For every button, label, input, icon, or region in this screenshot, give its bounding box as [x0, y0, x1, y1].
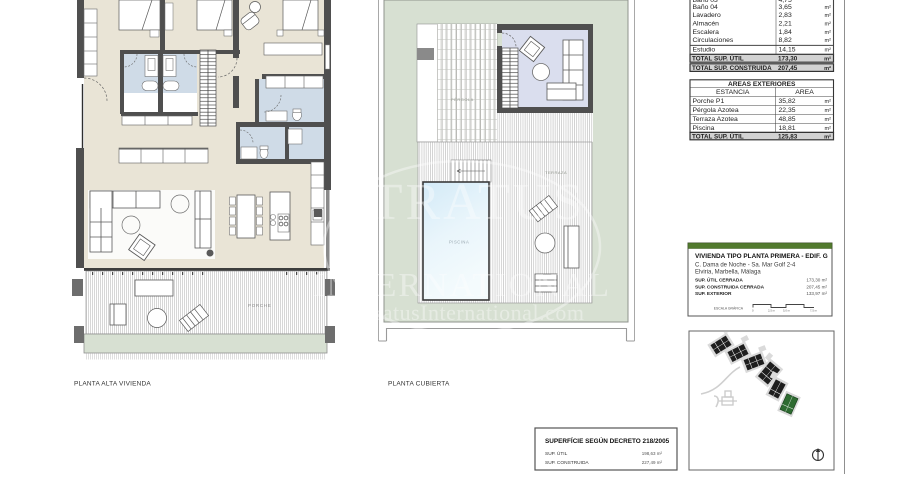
- svg-text:SUP. ÚTIL: SUP. ÚTIL: [545, 450, 568, 457]
- svg-text:227,49 m²: 227,49 m²: [642, 460, 663, 465]
- svg-text:m²: m²: [824, 108, 831, 114]
- svg-text:198,63 m²: 198,63 m²: [642, 451, 663, 456]
- svg-text:TOTAL SUP. CONSTRUIDA: TOTAL SUP. CONSTRUIDA: [692, 65, 772, 72]
- svg-text:SUP. CONSTRUIDA: SUP. CONSTRUIDA: [545, 460, 589, 466]
- svg-text:AREAS EXTERIORES: AREAS EXTERIORES: [728, 81, 796, 88]
- svg-text:m²: m²: [824, 117, 831, 123]
- svg-text:m²: m²: [824, 133, 831, 140]
- svg-text:PISCINA: PISCINA: [449, 240, 469, 245]
- svg-text:Terraza Azotea: Terraza Azotea: [693, 116, 739, 123]
- svg-text:SUPERFÍCIE SEGÚN DECRETO 218/2: SUPERFÍCIE SEGÚN DECRETO 218/2005: [545, 436, 670, 445]
- svg-text:STRATUS: STRATUS: [339, 174, 585, 231]
- svg-text:133,97 m²: 133,97 m²: [806, 291, 827, 296]
- svg-text:TOTAL SUP. ÚTIL: TOTAL SUP. ÚTIL: [692, 131, 744, 140]
- svg-text:Lavadero: Lavadero: [693, 12, 722, 19]
- svg-text:m²: m²: [824, 5, 831, 11]
- svg-text:18,81: 18,81: [779, 125, 796, 132]
- svg-text:VIVIENDA TIPO PLANTA PRIMERA -: VIVIENDA TIPO PLANTA PRIMERA - EDIF. G: [695, 253, 828, 260]
- svg-text:ESCALA GRÁFICA: ESCALA GRÁFICA: [714, 307, 744, 311]
- svg-text:INTERNATIONAL: INTERNATIONAL: [313, 267, 611, 304]
- svg-text:Baño 04: Baño 04: [693, 4, 719, 11]
- svg-text:PORCHE: PORCHE: [248, 303, 271, 308]
- svg-text:Piscina: Piscina: [693, 125, 715, 132]
- svg-text:Circulaciones: Circulaciones: [693, 37, 734, 44]
- svg-text:m²: m²: [824, 99, 831, 105]
- svg-text:125,83: 125,83: [778, 133, 798, 140]
- svg-text:173,30 m²: 173,30 m²: [806, 278, 827, 283]
- svg-text:2,5 m: 2,5 m: [768, 309, 776, 313]
- svg-text:m²: m²: [824, 47, 831, 53]
- svg-text:8,82: 8,82: [779, 37, 792, 44]
- svg-text:SUP. CONSTRUIDA CERRADA: SUP. CONSTRUIDA CERRADA: [695, 284, 765, 290]
- svg-text:PLANTA CUBIERTA: PLANTA CUBIERTA: [388, 381, 450, 388]
- svg-text:m²: m²: [824, 56, 831, 63]
- svg-text:3,65: 3,65: [779, 4, 792, 11]
- svg-text:C. Dama de Noche - Sa. Mar Gol: C. Dama de Noche - Sa. Mar Golf 2-4: [695, 263, 796, 269]
- svg-text:ESTANCIA: ESTANCIA: [716, 89, 750, 96]
- svg-text:207,45 m²: 207,45 m²: [806, 284, 827, 289]
- svg-text:Porche P1: Porche P1: [693, 98, 725, 105]
- svg-text:7,5 m: 7,5 m: [810, 309, 818, 313]
- svg-text:Almacén: Almacén: [693, 21, 720, 28]
- svg-text:48,85: 48,85: [779, 116, 796, 123]
- svg-text:5,0 m: 5,0 m: [783, 309, 791, 313]
- svg-text:2,21: 2,21: [779, 21, 792, 28]
- svg-text:StratusInternational.com: StratusInternational.com: [356, 300, 585, 325]
- svg-text:TOTAL SUP. ÚTIL: TOTAL SUP. ÚTIL: [692, 54, 744, 63]
- svg-text:2,83: 2,83: [779, 12, 792, 19]
- svg-text:SUP. EXTERIOR: SUP. EXTERIOR: [695, 291, 732, 297]
- svg-text:14,15: 14,15: [779, 46, 796, 53]
- svg-text:173,30: 173,30: [778, 56, 798, 63]
- svg-text:PÉRGOLA: PÉRGOLA: [451, 97, 474, 102]
- svg-text:PLANTA ALTA VIVIENDA: PLANTA ALTA VIVIENDA: [74, 381, 151, 388]
- svg-text:m²: m²: [824, 38, 831, 44]
- svg-text:m²: m²: [824, 126, 831, 132]
- svg-text:SUP. ÚTIL CERRADA: SUP. ÚTIL CERRADA: [695, 277, 743, 284]
- svg-text:35,82: 35,82: [779, 98, 796, 105]
- svg-text:Estudio: Estudio: [693, 46, 716, 53]
- svg-text:m²: m²: [824, 22, 831, 28]
- svg-text:Elviria, Marbella, Málaga: Elviria, Marbella, Málaga: [695, 270, 761, 276]
- svg-text:m²: m²: [824, 65, 831, 72]
- svg-text:207,45: 207,45: [778, 65, 798, 72]
- svg-text:m²: m²: [824, 30, 831, 36]
- svg-text:Pérgola Azotea: Pérgola Azotea: [693, 107, 739, 114]
- svg-text:1,84: 1,84: [779, 29, 792, 36]
- svg-text:m²: m²: [824, 13, 831, 19]
- svg-text:AREA: AREA: [795, 89, 814, 96]
- svg-text:22,35: 22,35: [779, 107, 796, 114]
- svg-text:Escalera: Escalera: [693, 29, 720, 36]
